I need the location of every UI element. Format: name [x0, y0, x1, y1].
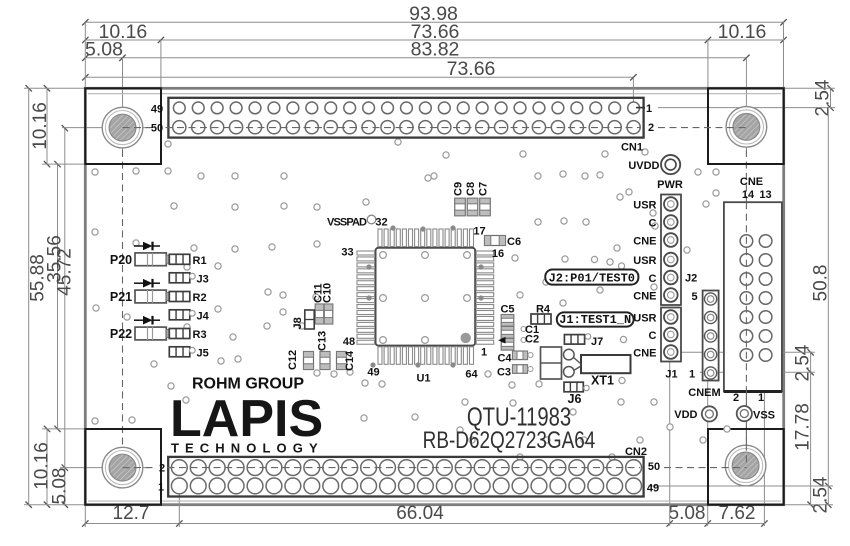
- svg-text:C6: C6: [507, 236, 521, 248]
- svg-text:J5: J5: [197, 347, 209, 359]
- svg-text:C: C: [649, 330, 657, 342]
- svg-text:J4: J4: [197, 310, 210, 322]
- svg-text:1: 1: [758, 392, 764, 404]
- svg-text:C12: C12: [287, 350, 299, 370]
- svg-text:C8: C8: [465, 182, 477, 196]
- svg-text:5.08: 5.08: [85, 39, 123, 61]
- svg-text:49: 49: [367, 367, 379, 379]
- svg-text:1: 1: [158, 481, 164, 493]
- svg-text:RB-D62Q2723GA64: RB-D62Q2723GA64: [423, 426, 596, 454]
- svg-text:J2:P01/TEST0: J2:P01/TEST0: [549, 272, 635, 286]
- svg-text:17: 17: [473, 226, 485, 238]
- svg-text:5.08: 5.08: [50, 468, 71, 505]
- svg-text:CNE: CNE: [633, 290, 656, 302]
- svg-text:32: 32: [375, 217, 387, 229]
- svg-text:1: 1: [481, 347, 487, 359]
- svg-text:2: 2: [648, 122, 654, 134]
- svg-text:2.54: 2.54: [813, 79, 834, 116]
- svg-text:5.08: 5.08: [669, 503, 706, 524]
- svg-text:CNE: CNE: [740, 176, 763, 188]
- svg-text:48: 48: [343, 336, 355, 348]
- svg-text:P22: P22: [110, 327, 132, 341]
- svg-text:PWR: PWR: [657, 179, 683, 191]
- svg-text:C2: C2: [525, 334, 539, 346]
- svg-text:R1: R1: [193, 255, 207, 267]
- svg-text:J1:TEST1_N: J1:TEST1_N: [559, 313, 631, 327]
- svg-text:J1: J1: [665, 369, 677, 381]
- svg-text:VSSPAD: VSSPAD: [327, 217, 367, 229]
- svg-text:1: 1: [646, 103, 652, 115]
- svg-text:2: 2: [159, 462, 165, 474]
- svg-text:14: 14: [742, 189, 755, 201]
- svg-text:2.54: 2.54: [793, 344, 814, 381]
- svg-text:CN1: CN1: [621, 142, 643, 154]
- svg-text:C: C: [649, 273, 657, 285]
- svg-text:USR: USR: [633, 255, 656, 267]
- svg-text:CN2: CN2: [625, 446, 647, 458]
- svg-text:C4: C4: [497, 353, 512, 365]
- svg-text:USR: USR: [633, 199, 656, 211]
- svg-text:C10: C10: [322, 283, 334, 303]
- svg-text:5: 5: [691, 291, 697, 303]
- svg-text:C14: C14: [344, 350, 356, 371]
- svg-text:P21: P21: [110, 290, 132, 304]
- svg-text:73.66: 73.66: [447, 58, 496, 80]
- svg-text:UVDD: UVDD: [628, 160, 659, 172]
- svg-text:R2: R2: [193, 292, 207, 304]
- svg-text:45.72: 45.72: [55, 248, 76, 296]
- svg-text:33: 33: [341, 247, 353, 259]
- svg-text:13: 13: [759, 189, 771, 201]
- svg-text:7.62: 7.62: [719, 503, 756, 524]
- svg-text:66.04: 66.04: [396, 503, 444, 524]
- svg-text:CNE: CNE: [633, 235, 656, 247]
- svg-text:C7: C7: [478, 182, 490, 196]
- svg-text:J8: J8: [292, 317, 304, 329]
- svg-text:10.16: 10.16: [30, 102, 51, 150]
- svg-text:1: 1: [689, 369, 695, 381]
- svg-text:CNE: CNE: [633, 347, 656, 359]
- svg-text:J7: J7: [591, 336, 603, 348]
- svg-text:VSS: VSS: [753, 410, 775, 422]
- svg-text:2: 2: [733, 392, 739, 404]
- svg-text:12.7: 12.7: [113, 503, 150, 524]
- svg-text:CNEM: CNEM: [688, 387, 720, 399]
- svg-text:10.16: 10.16: [718, 21, 767, 43]
- svg-text:C5: C5: [500, 304, 514, 316]
- svg-text:J3: J3: [197, 273, 209, 285]
- svg-text:64: 64: [465, 369, 478, 381]
- svg-text:50.8: 50.8: [810, 265, 831, 302]
- svg-text:VDD: VDD: [674, 409, 697, 421]
- svg-text:C: C: [649, 217, 657, 229]
- svg-text:16: 16: [492, 248, 504, 260]
- svg-text:U1: U1: [416, 373, 430, 385]
- svg-text:C9: C9: [453, 182, 465, 196]
- svg-text:P20: P20: [110, 253, 132, 267]
- svg-text:R3: R3: [193, 329, 207, 341]
- svg-text:50: 50: [151, 123, 163, 135]
- svg-text:LAPIS: LAPIS: [170, 390, 323, 448]
- svg-text:USR: USR: [633, 312, 656, 324]
- svg-text:50: 50: [648, 461, 660, 473]
- svg-text:J2: J2: [685, 273, 697, 285]
- svg-text:49: 49: [151, 104, 163, 116]
- svg-text:17.78: 17.78: [793, 403, 814, 451]
- svg-text:C3: C3: [497, 367, 511, 379]
- svg-text:TECHNOLOGY: TECHNOLOGY: [171, 441, 324, 456]
- svg-text:XT1: XT1: [591, 374, 614, 388]
- svg-text:C13: C13: [317, 331, 329, 351]
- svg-text:49: 49: [647, 483, 659, 495]
